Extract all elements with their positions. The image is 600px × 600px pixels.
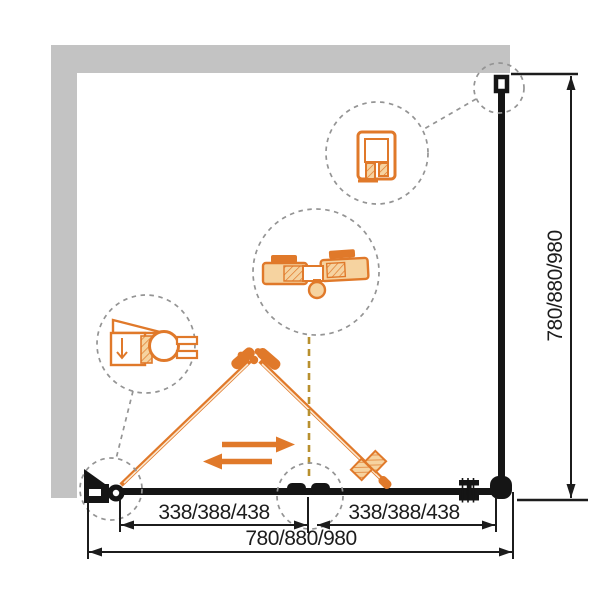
wall-profile-plan-icon bbox=[496, 77, 507, 91]
door-panel-left-core bbox=[124, 364, 248, 483]
fold-hinge-section-icon bbox=[263, 249, 369, 298]
dimension-label-segment-right: 338/388/438 bbox=[348, 501, 459, 525]
wall-left bbox=[51, 45, 77, 498]
technical-drawing-canvas: 338/388/438 338/388/438 780/880/980 780/… bbox=[0, 0, 600, 600]
corner-pivot-plan-icon bbox=[84, 469, 125, 503]
dimension-lines bbox=[88, 74, 588, 559]
dimension-label-total-width: 780/880/980 bbox=[245, 527, 356, 551]
wall-profile-section-icon bbox=[358, 132, 395, 181]
fixed-side-panel bbox=[490, 77, 512, 499]
fold-hinge-icon bbox=[229, 345, 282, 372]
dimension-label-segment-left: 338/388/438 bbox=[158, 501, 269, 525]
plan-drawing bbox=[0, 0, 600, 600]
direction-arrows-icon bbox=[203, 437, 295, 470]
corner-connector bbox=[490, 476, 512, 499]
wall-pivot-hinge-icon bbox=[111, 320, 197, 365]
wall-top bbox=[51, 45, 510, 73]
dimension-label-total-depth: 780/880/980 bbox=[544, 230, 568, 341]
